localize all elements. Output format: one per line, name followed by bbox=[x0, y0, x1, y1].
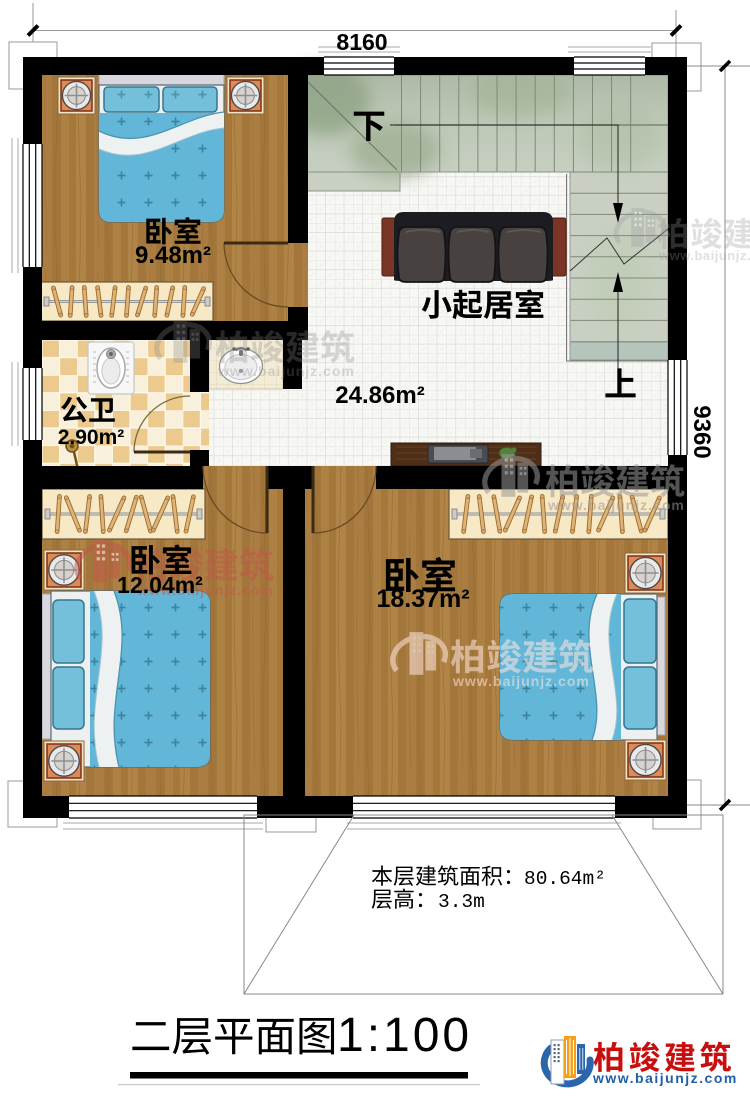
svg-text:9.48m²: 9.48m² bbox=[135, 242, 211, 269]
svg-text:www.baijunjz.com: www.baijunjz.com bbox=[452, 673, 590, 689]
svg-text:18.37m²: 18.37m² bbox=[376, 585, 469, 613]
svg-text:www.baijunjz.com: www.baijunjz.com bbox=[658, 248, 750, 263]
svg-text:12.04m²: 12.04m² bbox=[117, 572, 203, 598]
svg-text:www.baijunjz.com: www.baijunjz.com bbox=[217, 363, 355, 379]
svg-text:3.3m: 3.3m bbox=[438, 891, 485, 913]
svg-text:1:100: 1:100 bbox=[337, 1009, 472, 1062]
svg-text:24.86m²: 24.86m² bbox=[335, 382, 424, 409]
svg-text:2.90m²: 2.90m² bbox=[58, 426, 125, 449]
svg-text:9360: 9360 bbox=[688, 405, 715, 458]
svg-text:80.64m²: 80.64m² bbox=[524, 868, 606, 890]
svg-text:www.baijunjz.com: www.baijunjz.com bbox=[547, 497, 685, 513]
svg-text:8160: 8160 bbox=[336, 29, 387, 55]
svg-text:www.baijunjz.com: www.baijunjz.com bbox=[592, 1070, 738, 1086]
